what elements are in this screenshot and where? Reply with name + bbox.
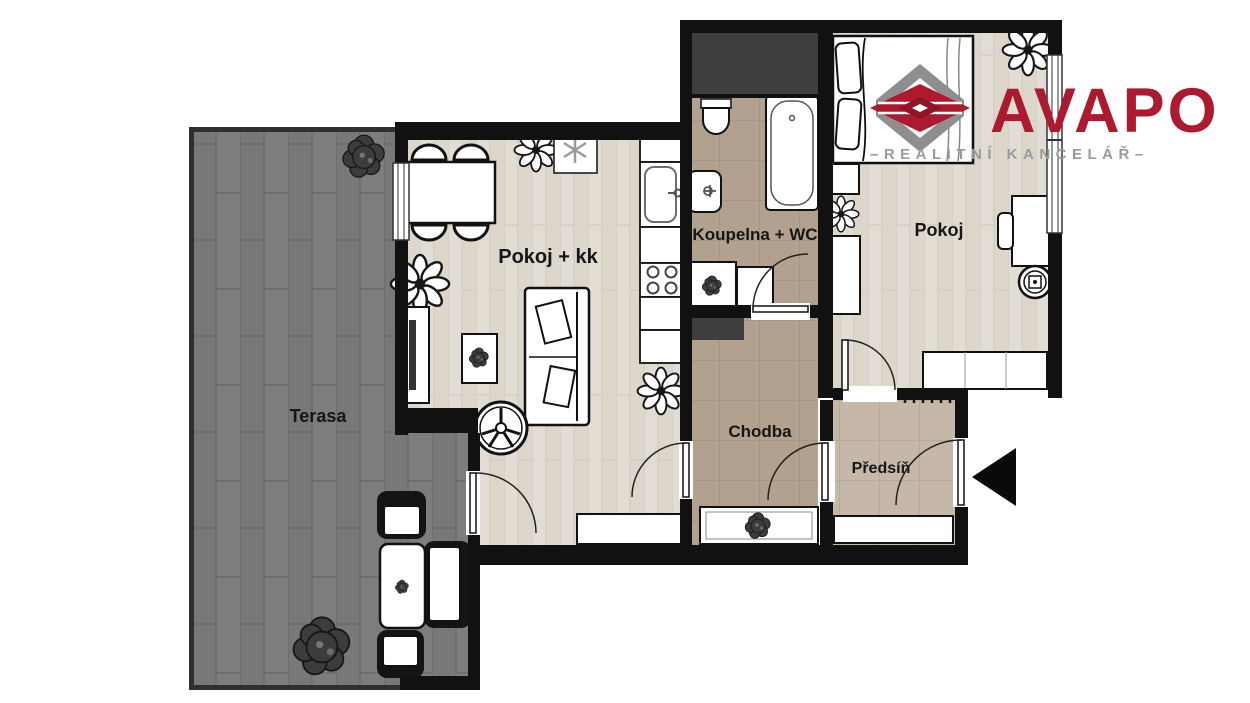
stool: [1019, 266, 1051, 298]
desk-chair: [998, 213, 1013, 249]
room-entry: Předsíň: [833, 394, 955, 545]
hallway-label: Chodba: [728, 422, 792, 441]
bathroom-label: Koupelna + WC: [692, 225, 817, 244]
terrace-chair-top: [377, 491, 426, 539]
dresser: [923, 352, 1047, 389]
living-label: Pokoj + kk: [498, 246, 598, 268]
terrace-bench: [424, 541, 471, 628]
bathroom-cabinet: [737, 267, 773, 308]
kitchen-sink: [645, 167, 682, 222]
hallway-cabinet: [700, 507, 818, 544]
terrace-chair-bottom: [377, 630, 424, 678]
window-living-west: [393, 163, 409, 240]
hallway-shaft: [692, 318, 744, 340]
bed-pillow: [835, 98, 861, 149]
side-table: [462, 334, 497, 383]
terrace-label: Terasa: [290, 406, 348, 426]
sideboard: [577, 514, 683, 544]
terrace-parapet-top: [189, 127, 397, 132]
bathtub: [766, 96, 818, 210]
installation-shaft: [692, 33, 818, 96]
brand-name: AVAPO: [990, 80, 1220, 143]
bed-pillow: [835, 42, 861, 93]
bathroom-sink: [688, 171, 721, 212]
floor-plan-page: Terasa: [0, 0, 1250, 703]
terrace-table: [380, 544, 425, 628]
toilet: [701, 99, 731, 134]
entrance-arrow-icon: [972, 448, 1016, 506]
kitchen-line: [640, 123, 683, 363]
room-bathroom: Koupelna + WC: [688, 96, 818, 308]
terrace-parapet-left: [189, 127, 194, 690]
brand-tagline: –REALITNÍ KANCELÁŘ–: [870, 146, 1149, 163]
room-hallway: Chodba: [692, 318, 818, 545]
sofa: [525, 288, 589, 425]
ceiling-fan-icon: [475, 402, 527, 454]
plant-kitchen: [638, 368, 685, 415]
bedroom-label: Pokoj: [914, 220, 963, 240]
entry-label: Předsíň: [852, 460, 911, 477]
entry-cabinet: [834, 516, 953, 543]
washing-machine: [690, 262, 736, 308]
brand-logo: AVAPO –REALITNÍ KANCELÁŘ–: [868, 52, 1218, 170]
